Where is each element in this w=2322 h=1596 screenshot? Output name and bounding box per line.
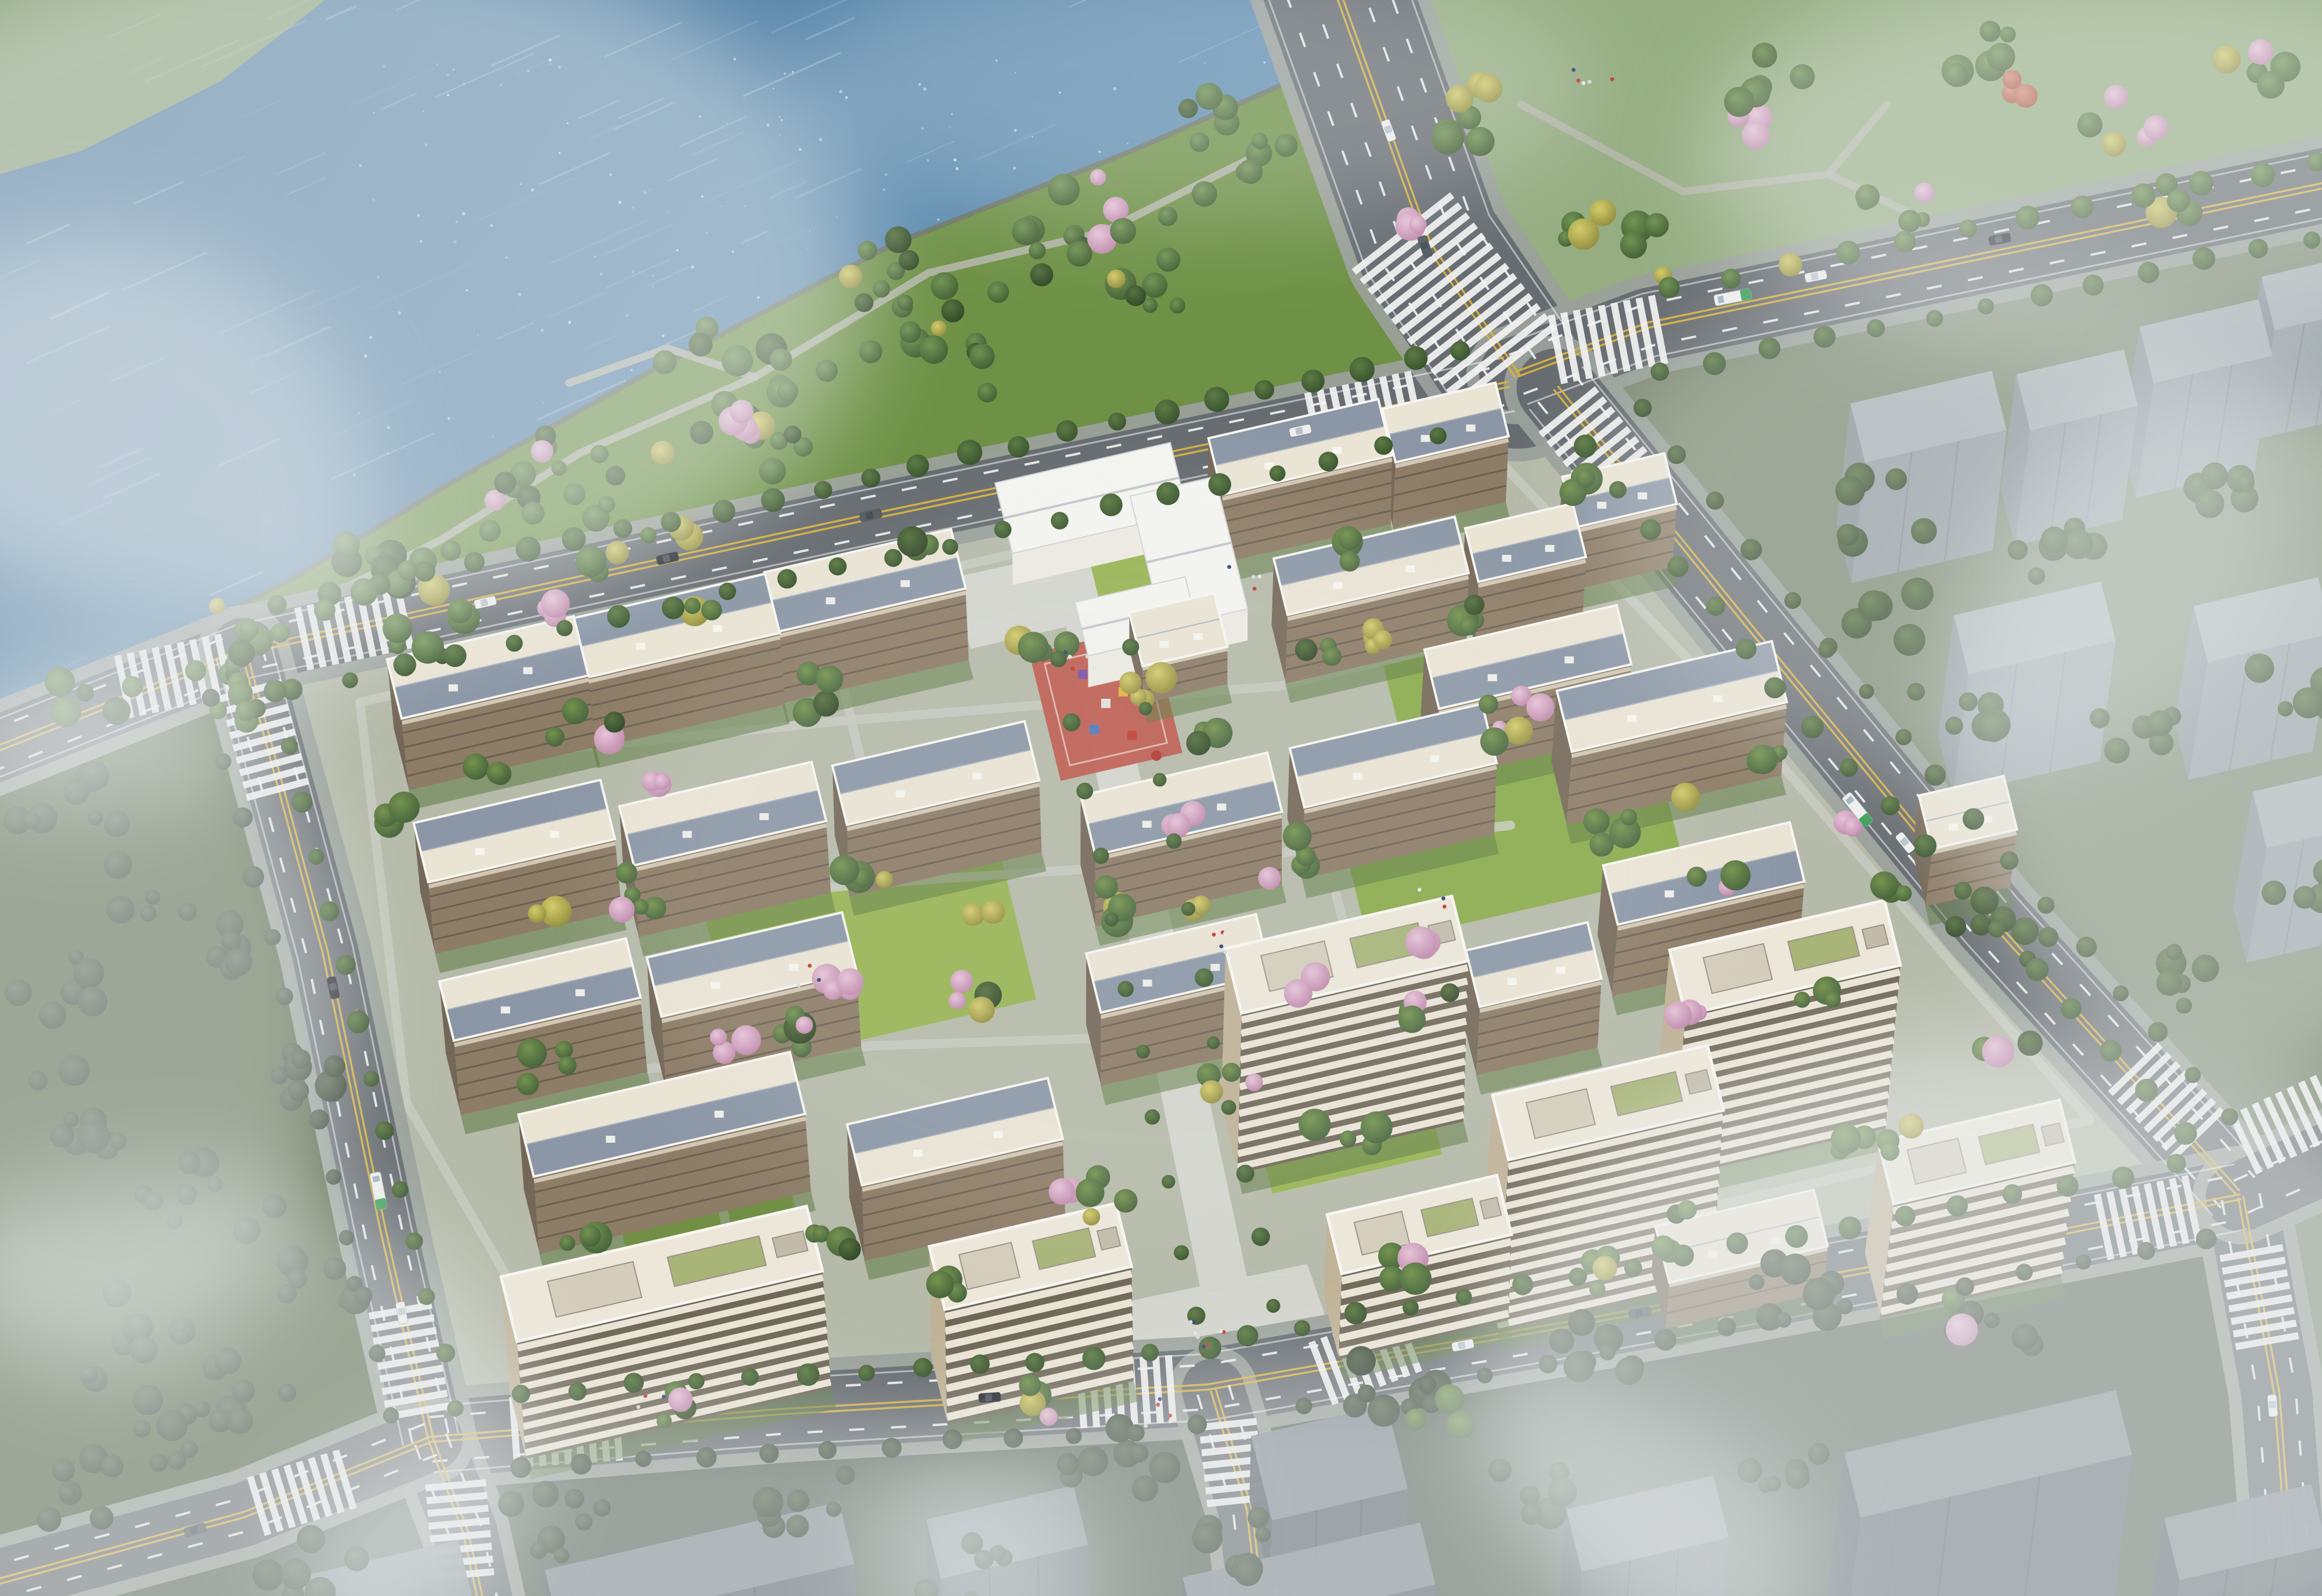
person <box>1205 1342 1209 1346</box>
person <box>662 1395 666 1399</box>
person <box>1194 1331 1198 1335</box>
person <box>1219 1329 1223 1333</box>
scene-canvas <box>0 0 2322 1596</box>
person <box>1196 1335 1200 1339</box>
car <box>978 1392 1001 1403</box>
fog-patch <box>610 493 1712 1248</box>
fog-patch <box>1596 261 2293 783</box>
person <box>1202 1345 1206 1349</box>
person <box>1189 1320 1193 1324</box>
person <box>643 1394 647 1398</box>
aerial-rendering <box>0 0 2322 1596</box>
person <box>1610 77 1614 81</box>
